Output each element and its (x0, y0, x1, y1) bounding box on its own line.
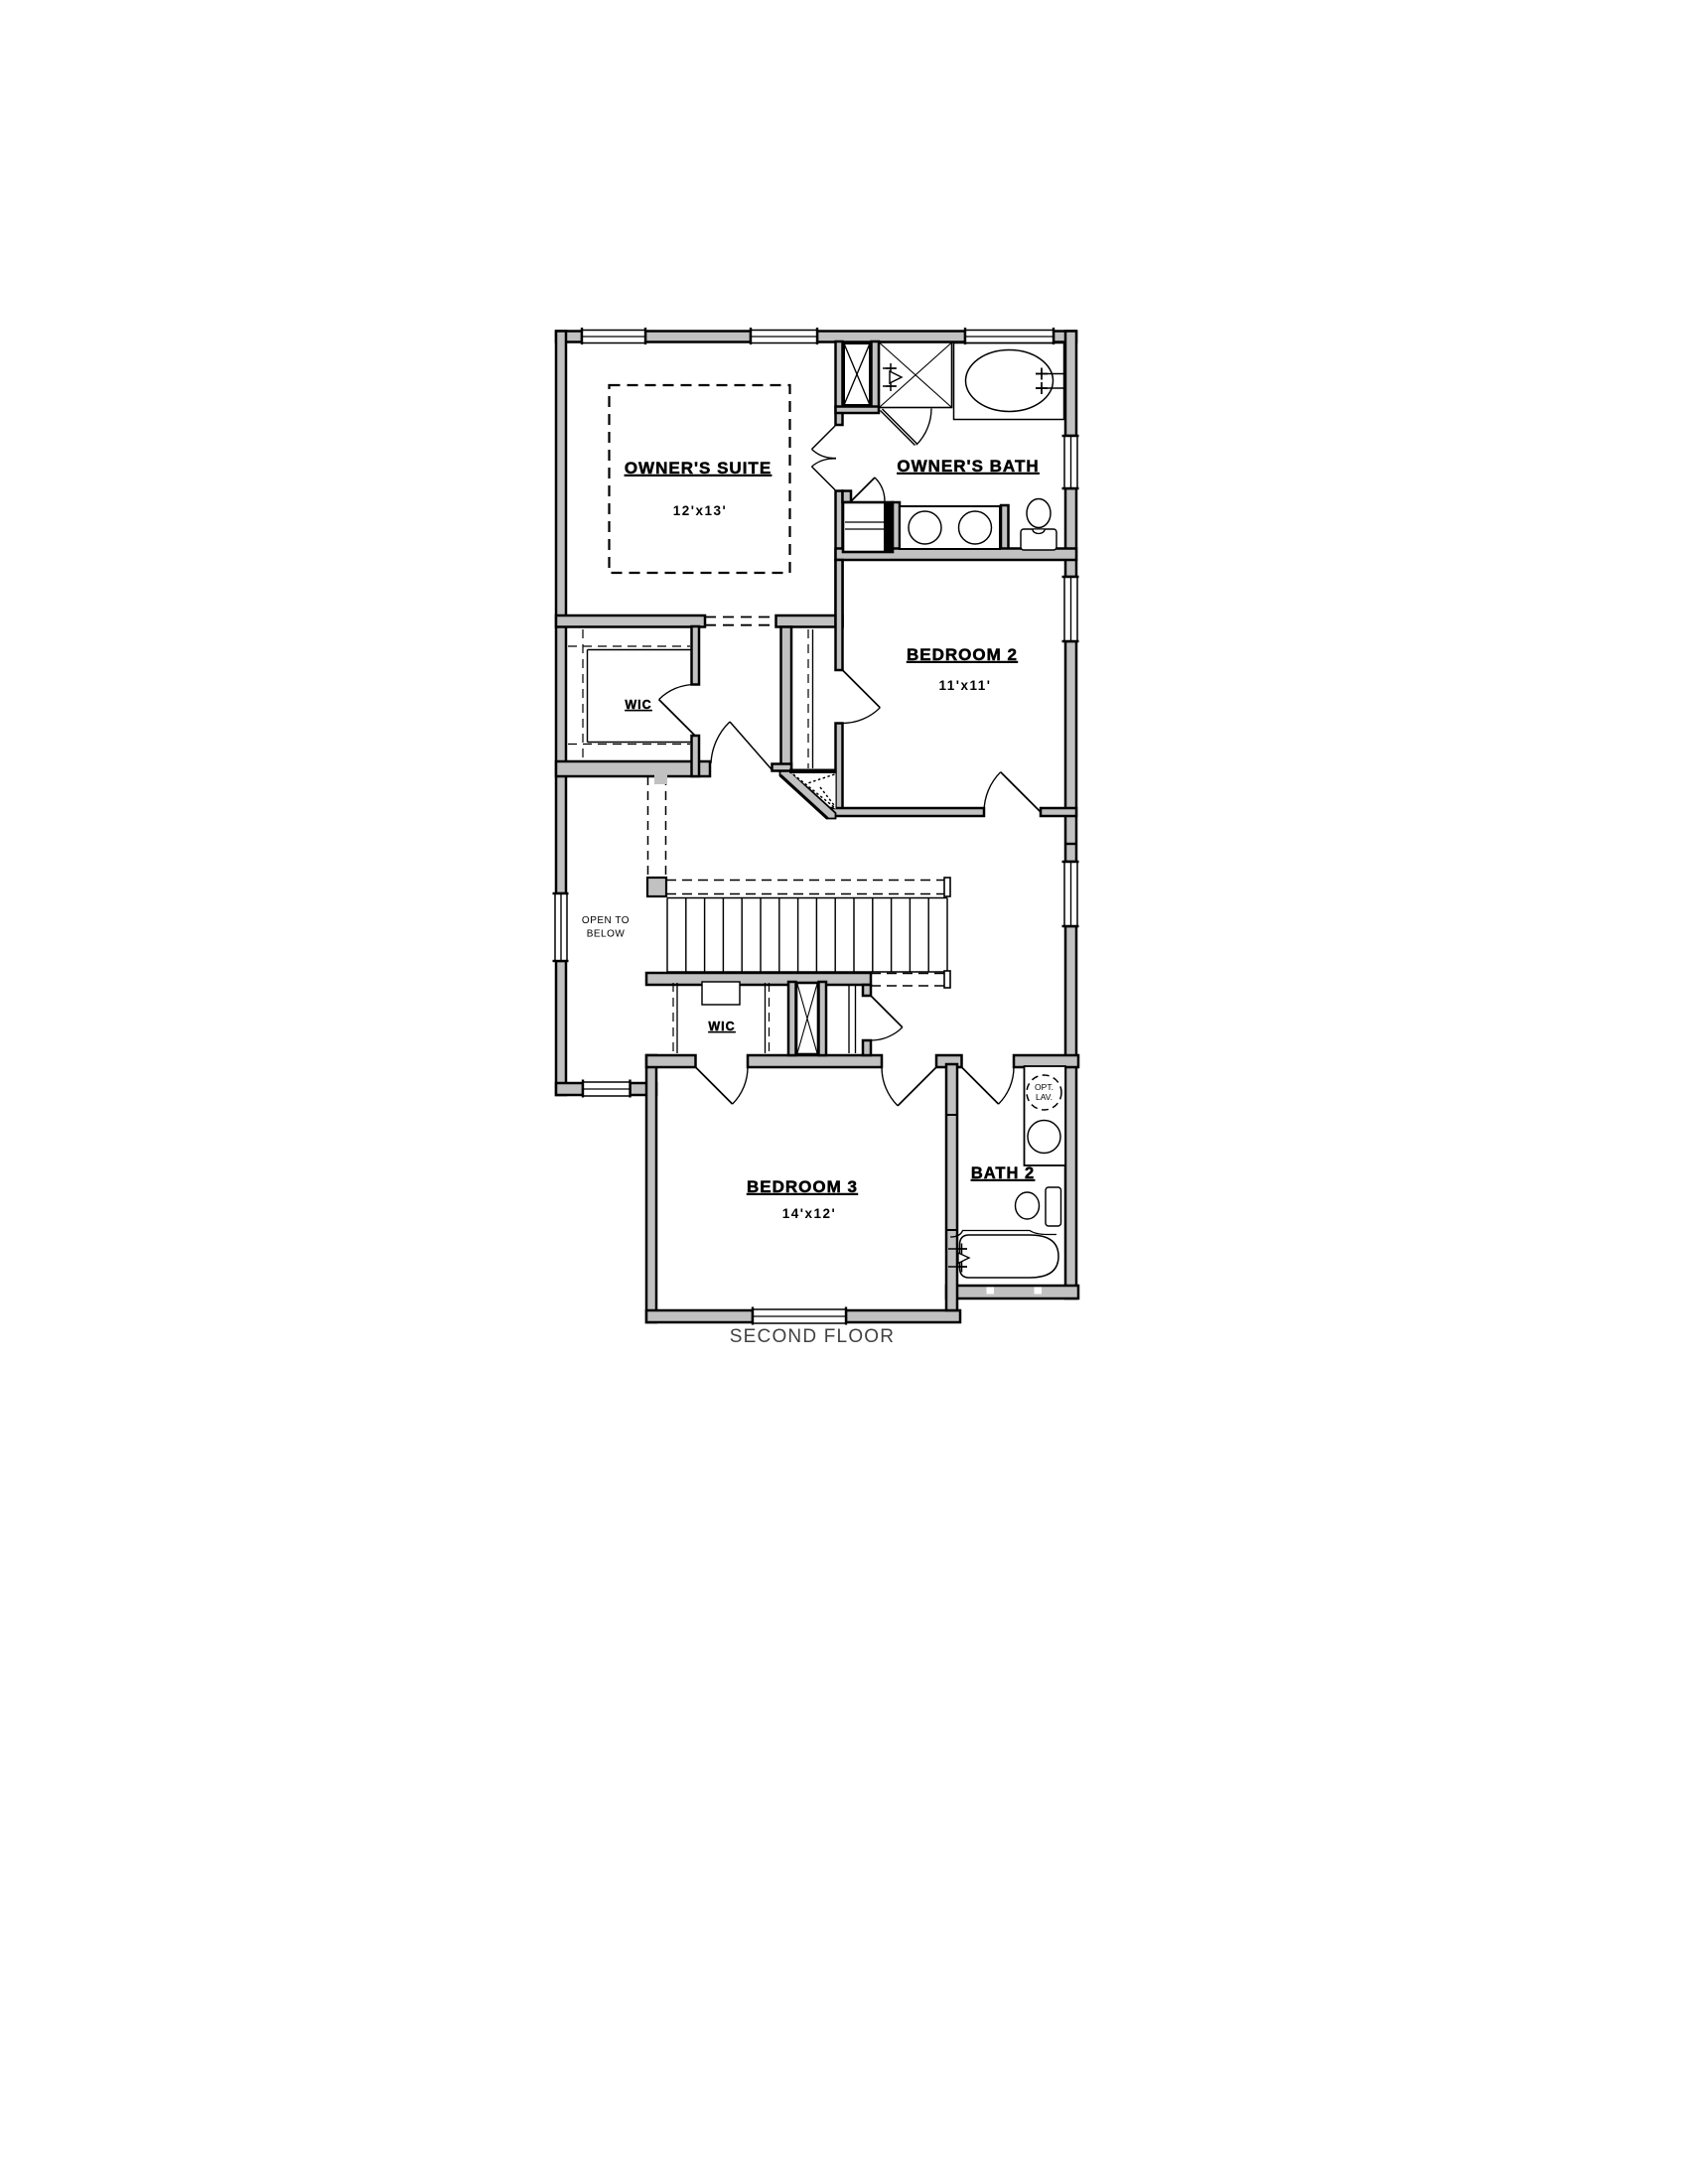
svg-text:14'x12': 14'x12' (782, 1206, 836, 1221)
svg-text:OPT.: OPT. (1035, 1082, 1054, 1092)
svg-text:WIC: WIC (708, 1020, 735, 1033)
svg-text:WIC: WIC (625, 698, 651, 712)
svg-text:OPEN TO: OPEN TO (582, 915, 630, 926)
svg-text:BATH 2: BATH 2 (971, 1164, 1035, 1182)
svg-text:LAV.: LAV. (1036, 1092, 1053, 1102)
svg-text:11'x11': 11'x11' (939, 678, 992, 693)
svg-text:BEDROOM 3: BEDROOM 3 (747, 1177, 858, 1196)
svg-text:BEDROOM 2: BEDROOM 2 (907, 645, 1018, 664)
svg-text:OWNER'S BATH: OWNER'S BATH (897, 457, 1039, 476)
svg-text:12'x13': 12'x13' (673, 503, 727, 518)
svg-text:SECOND FLOOR: SECOND FLOOR (730, 1326, 895, 1347)
svg-text:OWNER'S SUITE: OWNER'S SUITE (625, 459, 772, 478)
svg-text:BELOW: BELOW (587, 929, 626, 940)
